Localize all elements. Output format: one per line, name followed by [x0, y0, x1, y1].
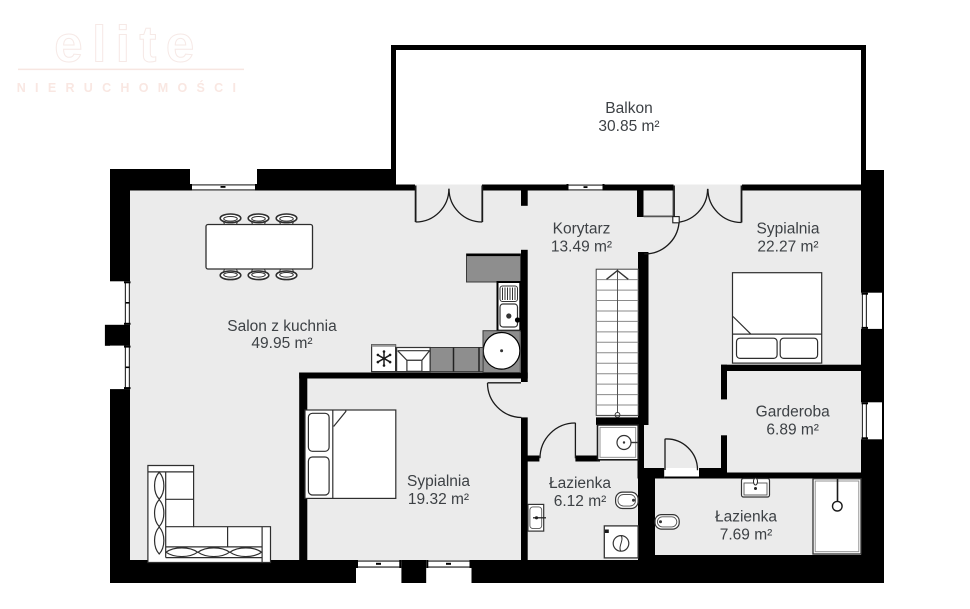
- svg-text:Korytarz: Korytarz: [553, 221, 611, 238]
- svg-text:Salon z kuchnia: Salon z kuchnia: [227, 318, 337, 335]
- svg-text:Łazienka: Łazienka: [549, 475, 611, 492]
- svg-text:6.12 m²: 6.12 m²: [554, 493, 607, 510]
- svg-text:elite: elite: [54, 16, 204, 73]
- svg-text:Sypialnia: Sypialnia: [407, 473, 470, 490]
- svg-text:Sypialnia: Sypialnia: [757, 221, 820, 238]
- svg-text:NIERUCHOMOŚCI: NIERUCHOMOŚCI: [17, 80, 246, 95]
- svg-text:Garderoba: Garderoba: [756, 404, 830, 421]
- svg-text:13.49 m²: 13.49 m²: [551, 239, 612, 256]
- svg-text:30.85 m²: 30.85 m²: [598, 118, 659, 135]
- svg-text:6.89 m²: 6.89 m²: [766, 422, 819, 439]
- svg-text:Balkon: Balkon: [605, 100, 652, 117]
- svg-text:Łazienka: Łazienka: [715, 509, 777, 526]
- svg-text:19.32 m²: 19.32 m²: [408, 491, 469, 508]
- svg-text:7.69 m²: 7.69 m²: [720, 527, 773, 544]
- svg-text:49.95 m²: 49.95 m²: [251, 335, 312, 352]
- svg-text:22.27 m²: 22.27 m²: [757, 239, 818, 256]
